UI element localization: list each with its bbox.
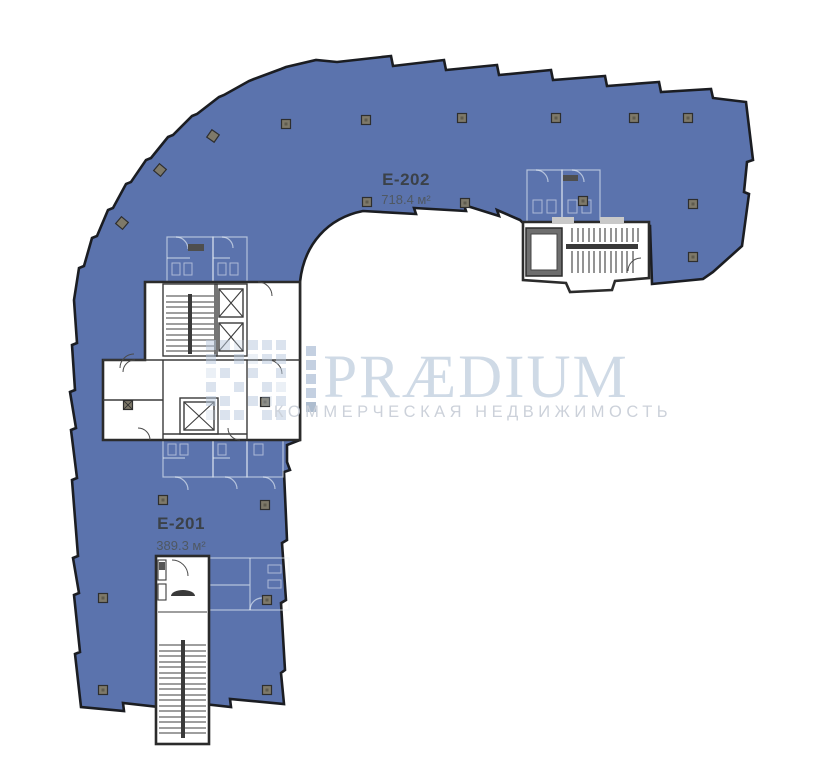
column bbox=[579, 197, 588, 206]
column bbox=[630, 114, 639, 123]
column bbox=[362, 116, 371, 125]
brand-name: PRÆDIUM bbox=[323, 344, 629, 411]
column bbox=[99, 594, 108, 603]
column bbox=[261, 501, 270, 510]
utility-box bbox=[188, 244, 204, 251]
floorplan-page: E-202 718.4 м² E-201 389.3 м² bbox=[0, 0, 823, 768]
fixture bbox=[159, 562, 165, 570]
column bbox=[282, 120, 291, 129]
column bbox=[458, 114, 467, 123]
unit-area-e201: 389.3 м² bbox=[156, 538, 206, 553]
unit-label-e202[interactable]: E-202 718.4 м² bbox=[381, 170, 431, 207]
stairwell-bottom bbox=[156, 556, 209, 744]
unit-id-e202[interactable]: E-202 bbox=[382, 170, 430, 189]
column bbox=[263, 596, 272, 605]
column bbox=[263, 686, 272, 695]
unit-area-e202: 718.4 м² bbox=[381, 192, 431, 207]
shaft-inner bbox=[531, 234, 557, 270]
column bbox=[99, 686, 108, 695]
landing-tab bbox=[600, 217, 624, 224]
floor-plan-svg: E-202 718.4 м² E-201 389.3 м² bbox=[0, 0, 823, 768]
column bbox=[159, 496, 168, 505]
utility-box bbox=[563, 175, 578, 181]
column bbox=[689, 253, 698, 262]
column bbox=[552, 114, 561, 123]
landing-tab bbox=[552, 217, 574, 224]
column bbox=[461, 199, 470, 208]
unit-id-e201[interactable]: E-201 bbox=[157, 514, 205, 533]
brand-tagline: КОММЕРЧЕСКАЯ НЕДВИЖИМОСТЬ bbox=[274, 403, 672, 421]
column bbox=[689, 200, 698, 209]
column bbox=[124, 401, 133, 410]
column bbox=[684, 114, 693, 123]
column bbox=[363, 198, 372, 207]
stairwell-topright bbox=[523, 217, 649, 292]
